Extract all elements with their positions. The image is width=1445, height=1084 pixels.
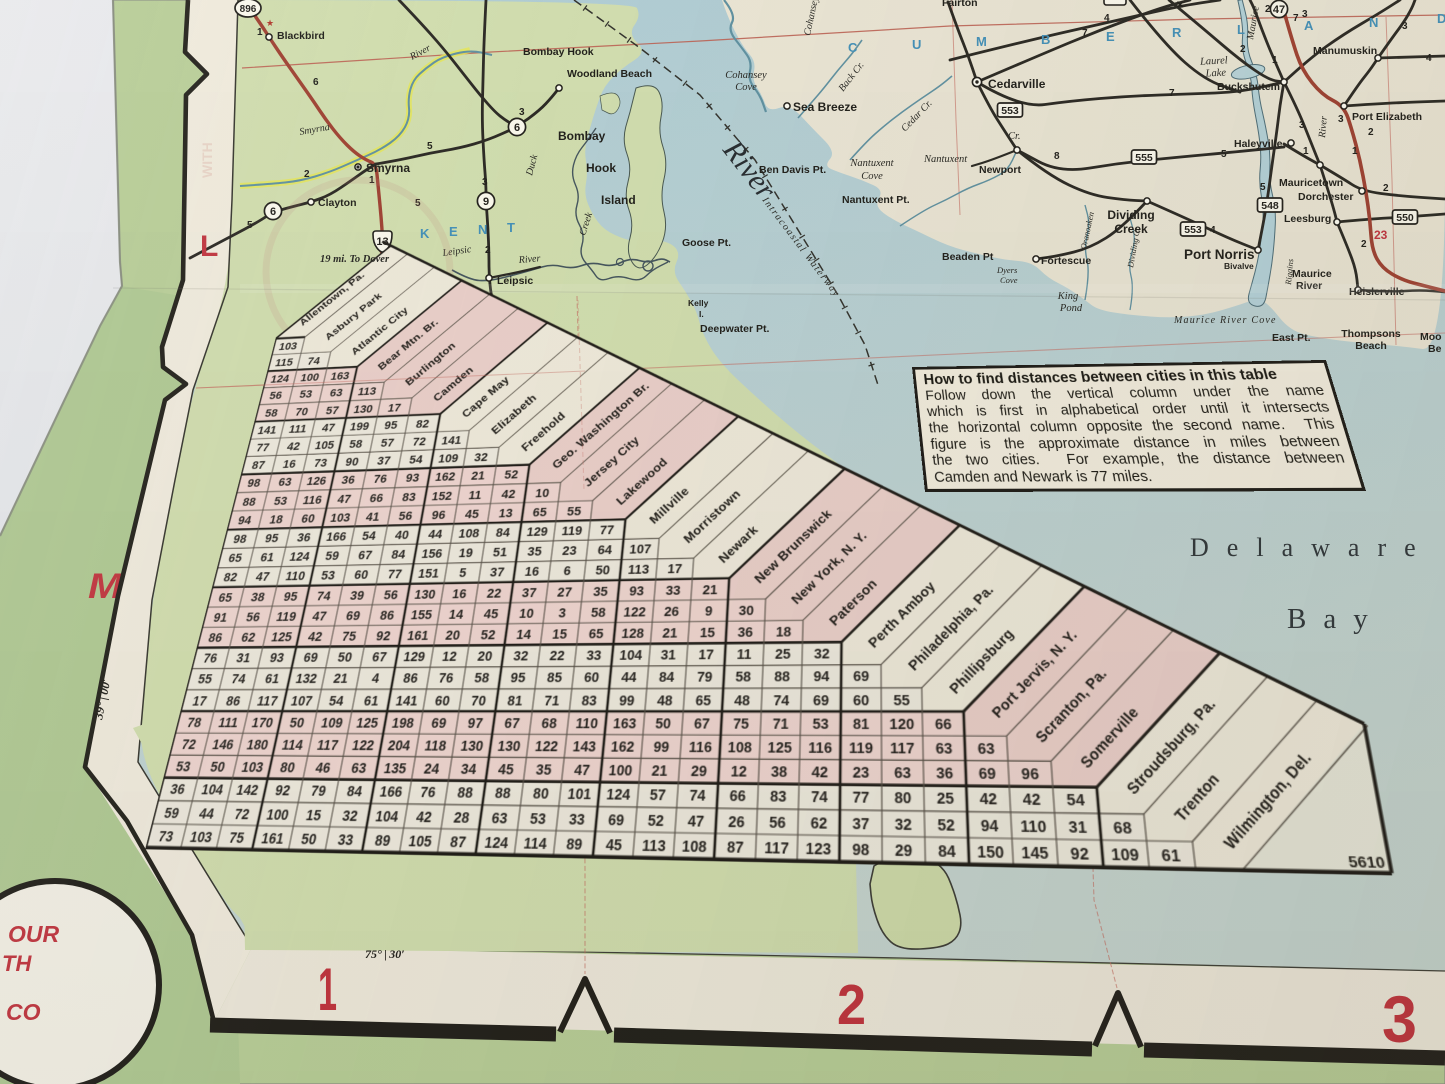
- svg-text:TH: TH: [2, 951, 32, 976]
- svg-text:19 mi. To Dover: 19 mi. To Dover: [320, 254, 390, 265]
- svg-text:OUR: OUR: [8, 921, 60, 947]
- svg-text:CO: CO: [6, 999, 41, 1025]
